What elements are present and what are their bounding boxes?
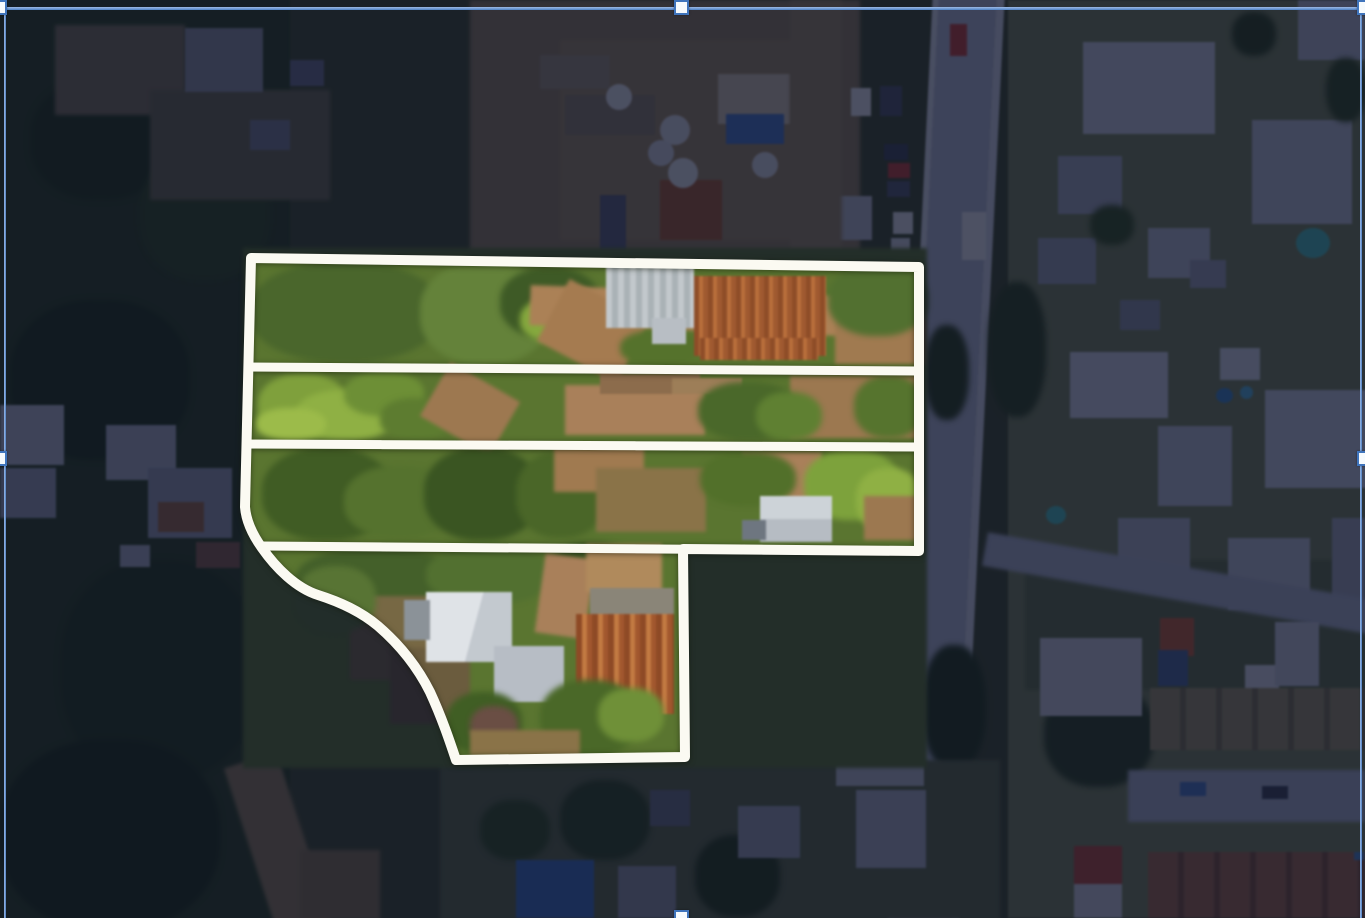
selection-handle-right-middle[interactable] (1357, 451, 1365, 466)
parcel-divider-2 (245, 444, 919, 447)
selection-handle-left-middle[interactable] (0, 451, 7, 466)
editor-canvas (0, 0, 1365, 918)
selection-handle-bottom-center[interactable] (674, 910, 689, 918)
dim-overlay (0, 0, 1365, 918)
parcel-divider-3 (262, 546, 919, 551)
selection-handle-top-left[interactable] (0, 0, 7, 15)
selection-handle-top-center[interactable] (674, 0, 689, 15)
parcel-divider-1 (246, 367, 919, 371)
parcel-annotation-layer (0, 0, 1365, 918)
selection-handle-top-right[interactable] (1357, 0, 1365, 15)
